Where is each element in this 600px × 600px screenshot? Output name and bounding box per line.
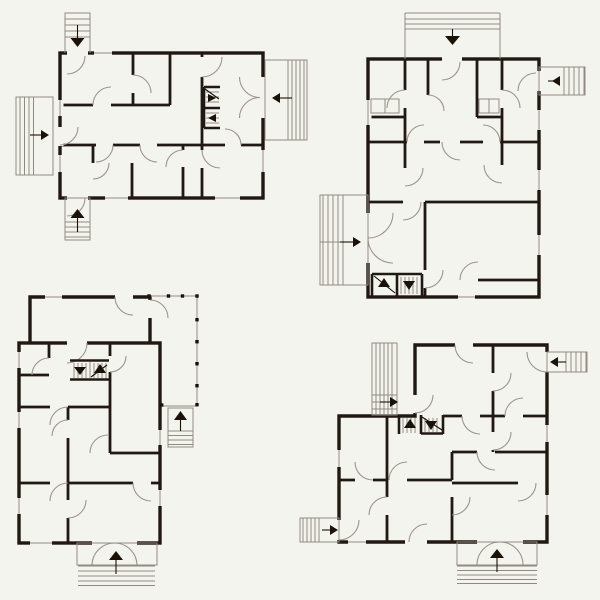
wall-openings [365, 56, 543, 301]
entrance-arrow-up-icon [174, 411, 187, 420]
floor-plans-canvas [0, 0, 600, 600]
stair-arrow-up-icon [404, 419, 416, 428]
entrance-arrow-up-icon [109, 551, 123, 560]
stair-arrow-up-icon [94, 364, 106, 373]
wall-openings [336, 342, 551, 546]
stairs-right-icon [547, 352, 587, 372]
stairs-left-icon [320, 195, 368, 285]
floor-plan-top-left [16, 13, 307, 240]
stairs-left-icon [16, 97, 53, 175]
stair-arrow-up-icon [378, 278, 390, 287]
entrance-arrow-up-icon [71, 209, 85, 218]
exterior-walls [339, 345, 547, 542]
closet-fixtures [371, 99, 499, 113]
window-lines [19, 297, 160, 543]
stairs-top-left-icon [372, 343, 398, 415]
stairs-bottom-icon [457, 542, 537, 584]
floor-plan-bottom-right [300, 342, 587, 584]
window-lines [60, 53, 263, 198]
door-arcs [339, 345, 547, 565]
entrance-arrow-left-icon [550, 357, 558, 367]
stair-arrow-left-icon [208, 114, 216, 122]
window-lines [368, 100, 539, 297]
wall-openings [16, 294, 164, 547]
internal-staircase-icon [70, 361, 109, 380]
porch-post-markers [147, 294, 198, 406]
interior-walls [60, 53, 263, 198]
stairs-bottom-icon [77, 543, 157, 586]
entrance-arrow-right-icon [41, 130, 49, 140]
internal-staircase-icon [399, 415, 443, 434]
internal-staircase-icon [372, 274, 422, 296]
stair-arrow-down-icon [74, 367, 86, 375]
wing-walls [30, 297, 150, 343]
stairs-bottom-icon [65, 198, 90, 240]
stairs-right-icon [168, 408, 193, 447]
door-arcs [32, 297, 168, 566]
stair-arrow-right-icon [208, 94, 216, 102]
stairs-top-icon [65, 13, 90, 53]
exterior-walls [60, 53, 263, 198]
entrance-arrow-left-icon [552, 76, 560, 86]
door-arcs [60, 56, 260, 216]
stairs-right-icon [539, 67, 585, 95]
entrance-arrow-up-icon [490, 549, 504, 558]
porch-outline [147, 294, 198, 406]
door-arcs [368, 62, 536, 288]
entrance-arrow-down-icon [445, 36, 460, 45]
stairs-right-icon [265, 60, 307, 140]
floor-plan-bottom-left [16, 294, 199, 586]
interior-walls [339, 345, 547, 542]
entrance-arrow-down-icon [71, 38, 85, 47]
entrance-arrow-left-icon [272, 93, 280, 103]
entrance-arrow-right-icon [353, 237, 361, 247]
stairs-top-icon [405, 13, 500, 59]
wall-openings [57, 50, 267, 202]
floor-plan-top-right [320, 13, 585, 301]
stairs-left-icon [300, 518, 339, 542]
internal-staircase-icon [204, 87, 220, 128]
